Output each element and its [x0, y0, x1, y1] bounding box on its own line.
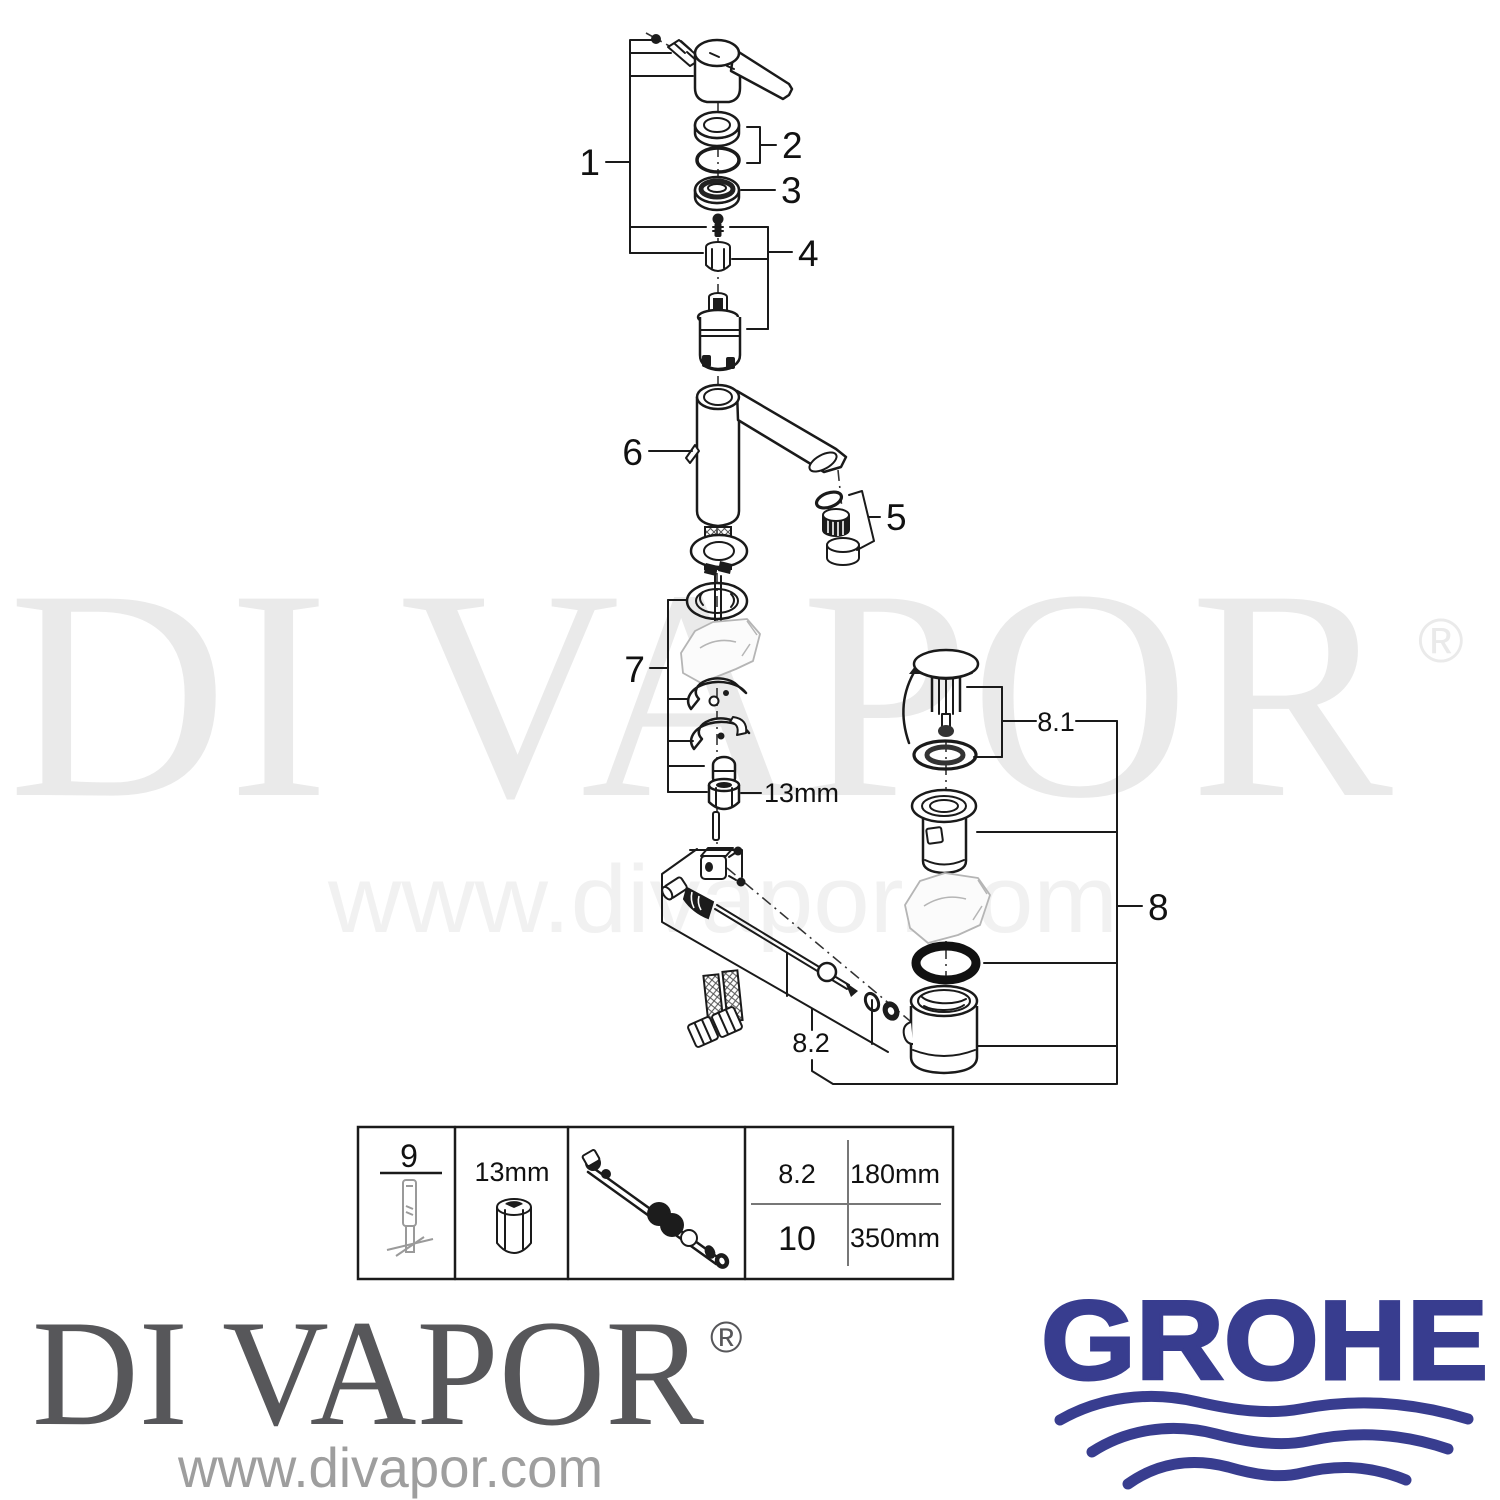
- part5-label: 5: [886, 497, 907, 538]
- watermark-brand: DI VAPOR: [8, 528, 1394, 860]
- divapor-registered-icon: ®: [710, 1313, 742, 1362]
- part82-label: 8.2: [792, 1028, 830, 1058]
- part1-bracket: 1: [579, 40, 693, 253]
- size-row1-ref: 8.2: [778, 1159, 816, 1189]
- nut-icon: [497, 1199, 531, 1253]
- part-pin: [713, 812, 719, 840]
- spares-table: 9 13mm: [358, 1127, 953, 1279]
- size-row2-ref: 10: [778, 1220, 816, 1258]
- wrench-size-callout: 13mm: [764, 778, 839, 808]
- part81-label: 8.1: [1037, 707, 1075, 737]
- divapor-url: www.divapor.com: [177, 1436, 603, 1499]
- part2-label: 2: [782, 125, 803, 166]
- part8-label: 8: [1148, 887, 1169, 928]
- part-collar-oring: [695, 112, 739, 172]
- watermark-layer: DI VAPOR ® www.divapor.com: [8, 528, 1464, 953]
- grohe-waves-icon: [1060, 1396, 1468, 1484]
- part4-label: 4: [798, 233, 819, 274]
- part2-bracket: 2: [747, 125, 803, 166]
- part6-label: 6: [622, 432, 643, 473]
- part-cartridge-assembly: [698, 214, 740, 371]
- size-row2-length: 350mm: [850, 1223, 940, 1253]
- part3-label: 3: [781, 170, 802, 211]
- tool-ref-label: 9: [400, 1138, 418, 1174]
- parts-diagram-page: DI VAPOR ® www.divapor.com: [0, 0, 1500, 1500]
- divapor-logo: DI VAPOR ® www.divapor.com: [32, 1289, 742, 1499]
- size-row1-length: 180mm: [850, 1159, 940, 1189]
- part-tap-body: 6: [622, 385, 846, 526]
- diagram-canvas: DI VAPOR ® www.divapor.com: [0, 0, 1500, 1500]
- divapor-logo-text: DI VAPOR: [32, 1289, 705, 1457]
- grohe-logo-text: GROHE: [1041, 1278, 1488, 1403]
- watermark-registered-icon: ®: [1418, 607, 1464, 676]
- part-handle-assembly: [651, 34, 792, 102]
- part7-label: 7: [624, 649, 645, 690]
- part1-label: 1: [579, 142, 600, 183]
- part-threaded-ring: 3: [695, 170, 802, 211]
- table-wrench-size: 13mm: [474, 1157, 549, 1187]
- grohe-logo: GROHE: [1041, 1278, 1488, 1484]
